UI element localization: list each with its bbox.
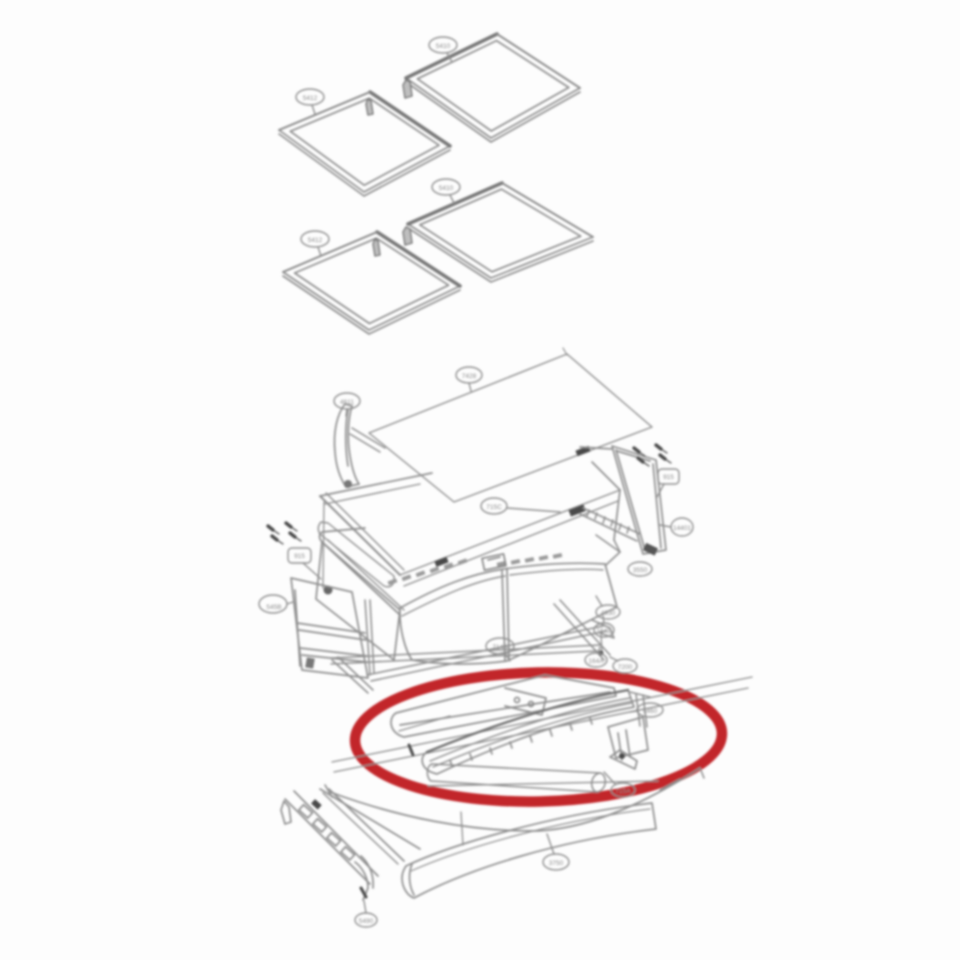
- svg-text:164A: 164A: [588, 658, 604, 665]
- svg-text:3750: 3750: [549, 860, 564, 867]
- svg-text:545B: 545B: [266, 604, 281, 611]
- svg-text:714B: 714B: [492, 644, 507, 651]
- svg-text:715C: 715C: [486, 504, 502, 511]
- svg-text:915: 915: [294, 553, 305, 560]
- svg-text:5460: 5460: [643, 708, 658, 715]
- svg-text:5490: 5490: [359, 918, 374, 925]
- svg-text:3550: 3550: [633, 567, 648, 574]
- svg-text:5410: 5410: [439, 185, 454, 192]
- svg-text:715A: 715A: [615, 788, 631, 795]
- svg-text:14401: 14401: [673, 525, 691, 532]
- svg-text:5412: 5412: [303, 95, 318, 102]
- svg-text:5410: 5410: [436, 43, 451, 50]
- svg-text:4930: 4930: [601, 610, 616, 617]
- svg-text:164B: 164B: [596, 628, 611, 635]
- svg-text:5412: 5412: [308, 237, 323, 244]
- svg-text:7200: 7200: [618, 664, 633, 671]
- svg-text:7428: 7428: [462, 373, 477, 380]
- svg-text:4611: 4611: [340, 399, 354, 406]
- svg-text:915: 915: [663, 474, 674, 481]
